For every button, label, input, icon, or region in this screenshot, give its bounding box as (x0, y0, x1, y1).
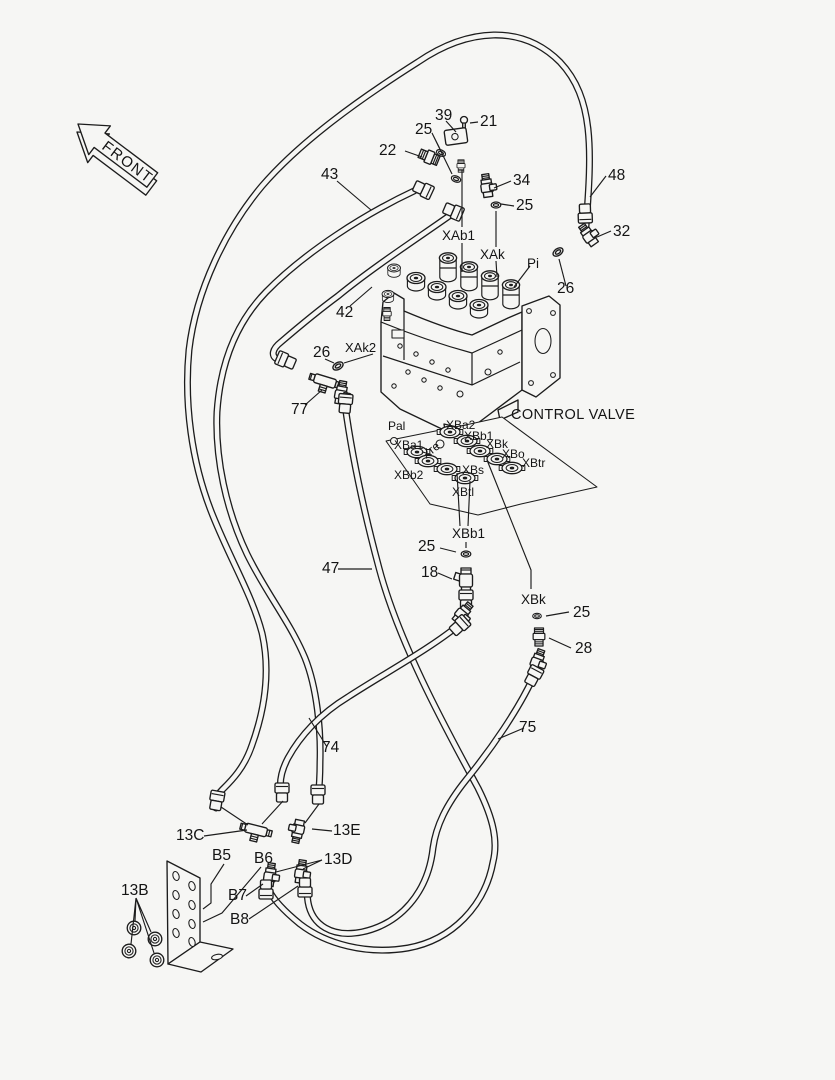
oring-25 (450, 175, 461, 184)
label-b5: B5 (212, 847, 231, 864)
hose43-end-coupling (311, 785, 325, 804)
label-74: 74 (322, 739, 340, 756)
nipple-28 (533, 628, 545, 646)
fitting-18 (454, 568, 473, 592)
label-xbk: XBk (521, 592, 546, 607)
elbow-13e (286, 818, 306, 844)
hose75-end-coupling (298, 878, 312, 897)
label-xbtl: XBtl (452, 485, 474, 499)
label-25: 25 (415, 121, 432, 138)
label-26: 26 (313, 344, 330, 361)
label-25: 25 (573, 604, 590, 621)
label-pi: Pi (527, 256, 539, 271)
mounting-bracket (167, 861, 233, 972)
hose47-end-coupling (259, 880, 273, 899)
callout-labels: 392125224334482532XAb1XAkPi2642XAk22677C… (121, 107, 635, 928)
label-13c: 13C (176, 827, 204, 844)
label-control-valve: CONTROL VALVE (511, 407, 635, 423)
label-43: 43 (321, 166, 338, 183)
hose42-end-coupling (274, 350, 297, 370)
hose74-end-coupling (275, 783, 289, 802)
label-xbb1: XBb1 (452, 526, 485, 541)
stud-39 (457, 160, 465, 172)
hose-43 (217, 191, 414, 798)
label-18: 18 (421, 564, 438, 581)
label-22: 22 (379, 142, 396, 159)
label-21: 21 (480, 113, 497, 130)
bolts-13b (122, 921, 164, 967)
oring-25 (533, 613, 542, 618)
label-b7: B7 (228, 887, 247, 904)
label-75: 75 (519, 719, 536, 736)
fittings (208, 117, 602, 900)
label-48: 48 (608, 167, 625, 184)
label-26: 26 (557, 280, 574, 297)
label-28: 28 (575, 640, 592, 657)
tee-13c (238, 822, 273, 845)
label-xak2: XAk2 (345, 340, 376, 355)
screw-21 (461, 117, 468, 129)
label-42: 42 (336, 304, 353, 321)
label-xbb2: XBb2 (394, 468, 424, 482)
label-13e: 13E (333, 822, 361, 839)
label-xab1: XAb1 (442, 228, 475, 243)
label-13d: 13D (324, 851, 352, 868)
oring-26 (331, 360, 344, 371)
label-25: 25 (418, 538, 435, 555)
label-xak: XAk (480, 247, 505, 262)
oring-25 (461, 551, 471, 557)
hose-75 (306, 678, 533, 933)
front-direction-arrow: FRONT (63, 110, 166, 203)
label-39: 39 (435, 107, 452, 124)
label-b8: B8 (230, 911, 249, 928)
pilot-piping-diagram: FRONT (0, 0, 835, 1080)
label-47: 47 (322, 560, 339, 577)
block-39 (444, 128, 468, 146)
hose43-coupling (412, 179, 435, 200)
label-xbtr: XBtr (522, 456, 545, 470)
oring-26 (551, 246, 564, 258)
label-34: 34 (513, 172, 531, 189)
label-pal: Pal (388, 419, 405, 433)
label-77: 77 (291, 401, 308, 418)
hose-74 (280, 625, 459, 796)
hose47-coupling (338, 393, 354, 413)
label-xbs: XBs (462, 463, 484, 477)
hose48-coupling (578, 204, 593, 223)
elbow-34 (479, 173, 498, 198)
label-b6: B6 (254, 850, 273, 867)
label-32: 32 (613, 223, 630, 240)
label-25: 25 (516, 197, 533, 214)
label-13b: 13B (121, 882, 149, 899)
oring-25 (491, 202, 501, 208)
